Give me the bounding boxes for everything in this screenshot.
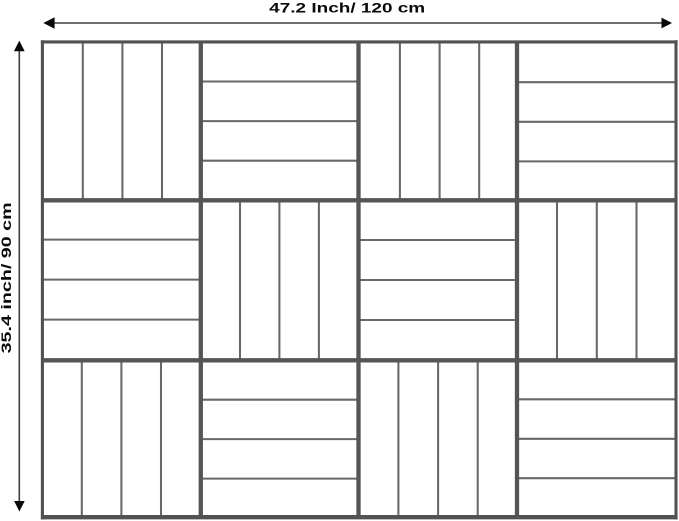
svg-text:35.4 inch/ 90 cm: 35.4 inch/ 90 cm xyxy=(0,202,15,353)
svg-text:47.2 Inch/ 120 cm: 47.2 Inch/ 120 cm xyxy=(269,0,425,16)
